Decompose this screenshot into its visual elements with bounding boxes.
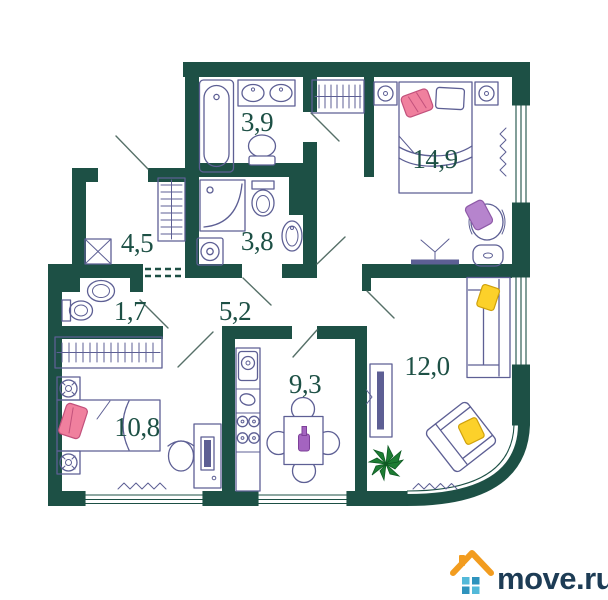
sofa (467, 278, 510, 378)
wardrobe-bedroom-niche (312, 80, 364, 113)
area-label-wc: 1,7 (114, 296, 146, 326)
sink-shower-bathroom (282, 221, 302, 251)
floor-plan-image: 3,9 4,5 3,8 1,7 5,2 14,9 10,8 9,3 12,0 m… (0, 0, 608, 600)
floor-plan-svg: 3,9 4,5 3,8 1,7 5,2 14,9 10,8 9,3 12,0 m… (0, 0, 608, 600)
double-bed (399, 82, 472, 193)
window-living-right (512, 277, 530, 365)
chair-kids (168, 441, 194, 471)
toilet-wc (62, 300, 93, 321)
wardrobe-hallway (158, 178, 185, 241)
area-label-hallway: 4,5 (121, 228, 153, 258)
desk-kids (194, 424, 221, 488)
logo-house-icon (453, 553, 491, 594)
wardrobe-kids (55, 337, 162, 368)
area-label-shower-bathroom: 3,8 (241, 226, 273, 256)
nightstand-right (475, 82, 498, 105)
window-kids-bottom (85, 491, 203, 506)
stool-hallway (85, 239, 111, 264)
sink-wc (88, 281, 115, 302)
area-label-corridor: 5,2 (219, 296, 251, 326)
side-table-bedroom (473, 245, 503, 266)
tv-stand-living (367, 364, 393, 437)
bathtub (200, 80, 234, 172)
washing-machine (197, 238, 223, 265)
area-label-kitchen: 9,3 (289, 369, 321, 399)
kitchen-counter (236, 348, 260, 491)
double-sink (238, 80, 295, 106)
logo-text: move.ru (497, 561, 608, 596)
radiator-living (413, 484, 457, 490)
window-kitchen-bottom (258, 491, 347, 506)
nightstand-left (374, 82, 397, 105)
radiator-bedroom (500, 128, 506, 176)
plant (369, 446, 403, 480)
toilet-shower-bathroom (252, 181, 274, 216)
radiator-kids (118, 483, 166, 489)
logo: move.ru (453, 553, 608, 596)
area-label-bathroom-top: 3,9 (241, 107, 273, 137)
area-label-kids-room: 10,8 (114, 412, 159, 442)
area-label-living-room: 12,0 (404, 351, 449, 381)
armchair-living (425, 401, 498, 474)
dining-set (267, 398, 340, 483)
area-label-bedroom: 14,9 (412, 144, 457, 174)
armchair-bedroom (464, 199, 505, 240)
toilet-top-bathroom (249, 135, 276, 165)
tv-bedroom (411, 239, 459, 265)
dashed-opening (145, 269, 186, 276)
shower (200, 180, 245, 231)
window-bedroom-right (512, 105, 530, 203)
